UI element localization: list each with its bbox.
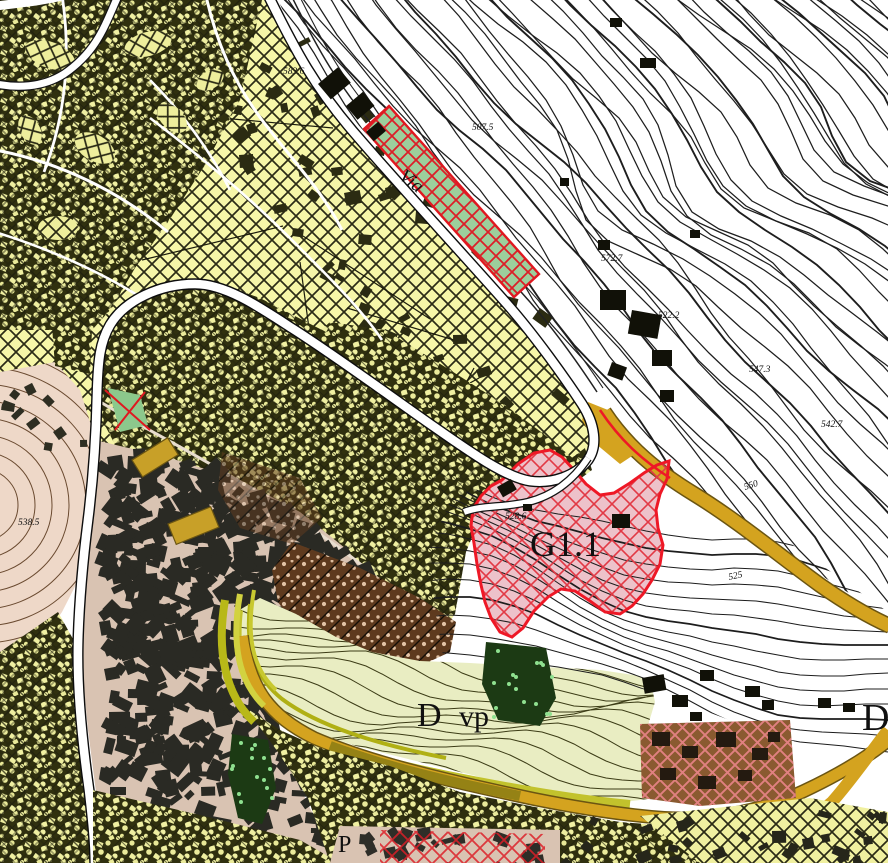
- svg-text:572.7: 572.7: [601, 254, 624, 264]
- svg-text:583.6: 583.6: [283, 67, 305, 77]
- svg-text:522.2: 522.2: [658, 311, 680, 321]
- svg-text:528.6: 528.6: [505, 512, 527, 522]
- svg-text:538.5: 538.5: [18, 518, 40, 528]
- svg-text:507.5: 507.5: [472, 123, 494, 133]
- svg-text:D: D: [417, 697, 442, 734]
- svg-text:P: P: [338, 832, 351, 858]
- svg-text:D: D: [862, 697, 888, 739]
- svg-text:vp: vp: [459, 700, 489, 733]
- svg-text:542.7: 542.7: [821, 420, 844, 430]
- svg-text:G1.1: G1.1: [530, 524, 601, 564]
- svg-text:547.3: 547.3: [749, 365, 771, 375]
